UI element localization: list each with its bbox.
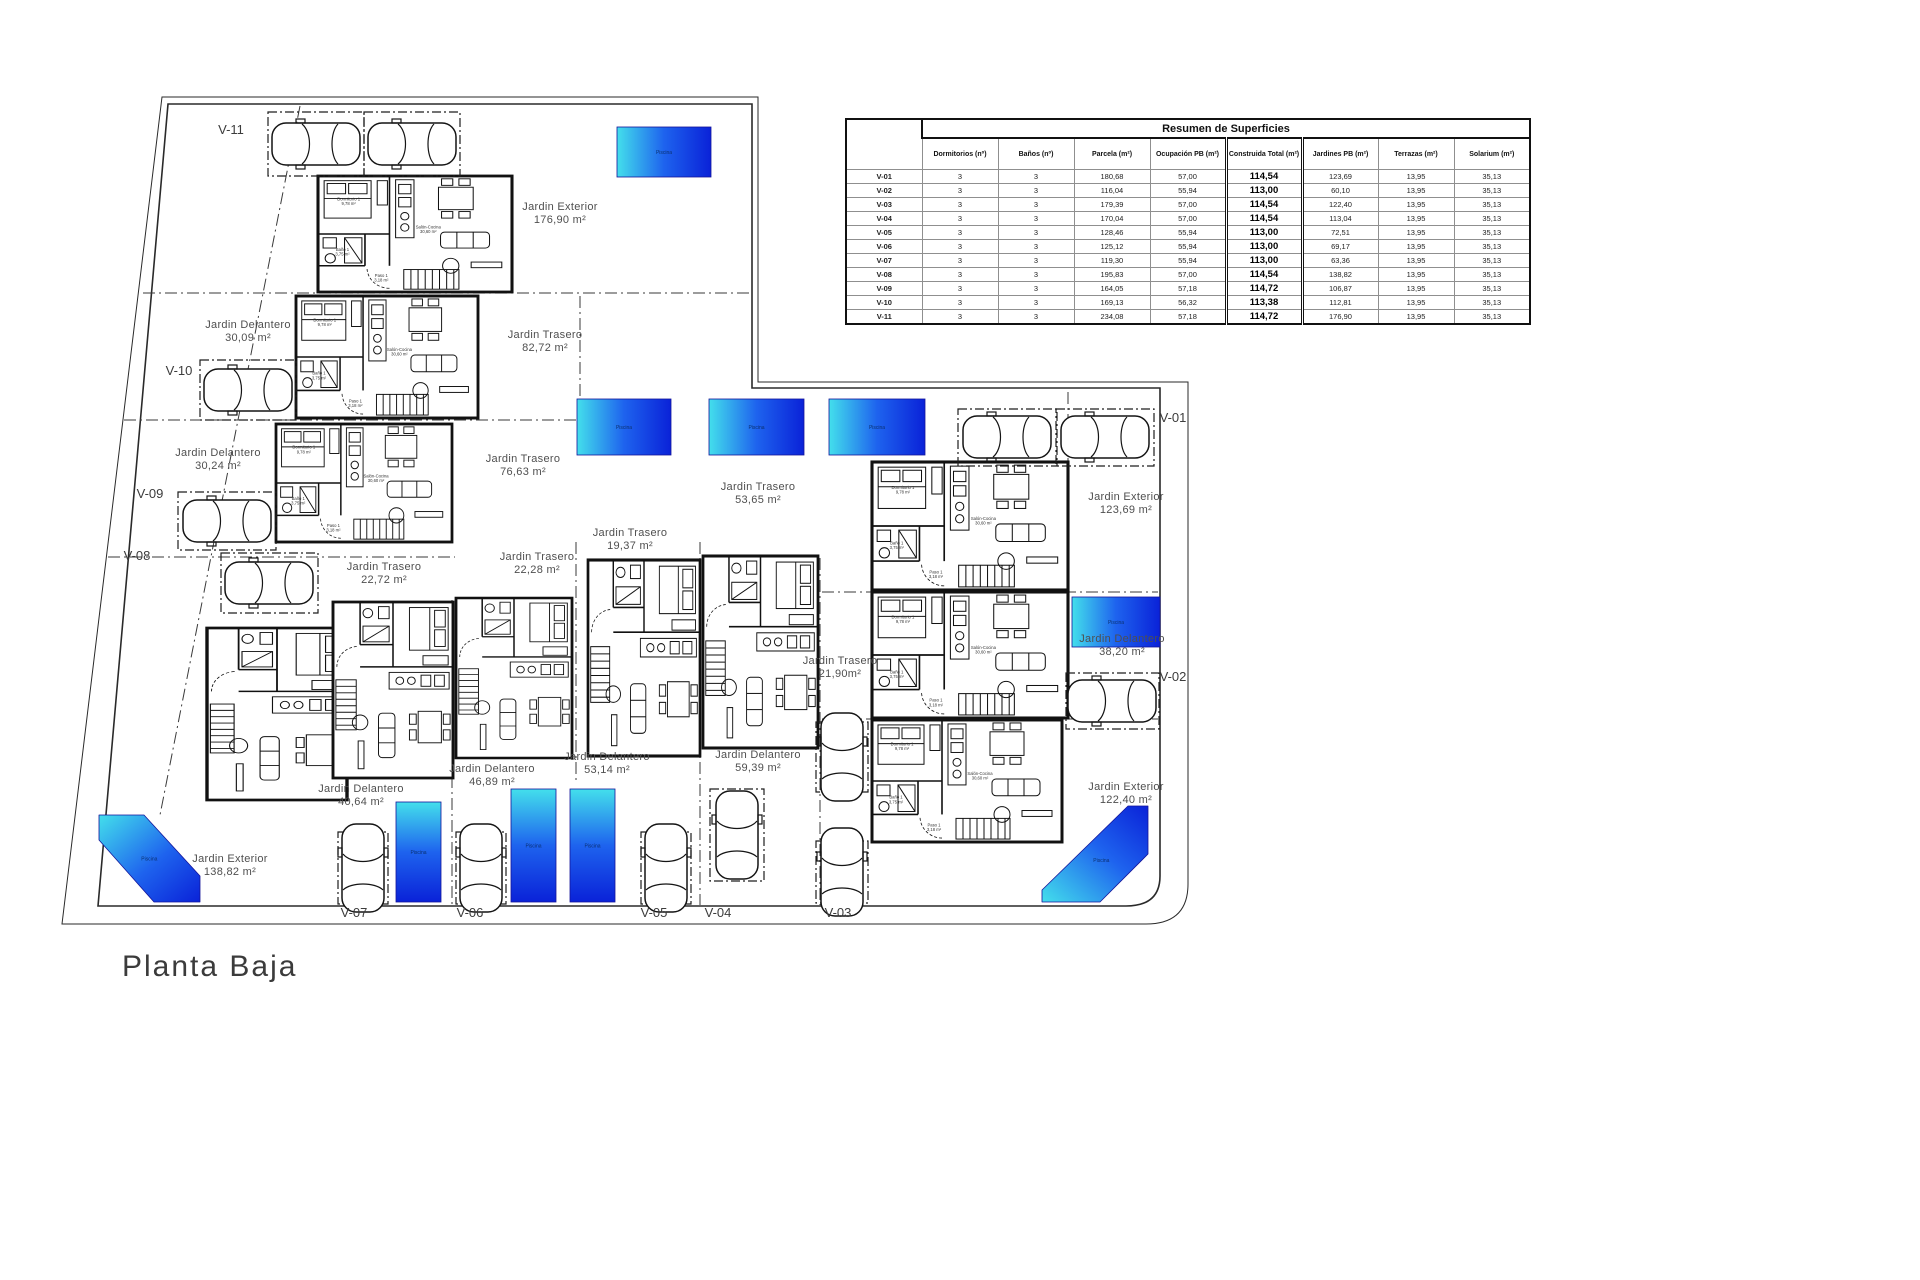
row-header: V-01 <box>846 170 922 184</box>
table-cell: 3 <box>922 254 998 268</box>
row-header: V-02 <box>846 184 922 198</box>
plot-label-V-07: V-07 <box>341 905 368 920</box>
pool-label: Piscina <box>748 425 764 431</box>
table-cell: 13,95 <box>1378 170 1454 184</box>
room-label: Paso 13,18 m² <box>929 569 944 579</box>
table-cell: 3 <box>998 226 1074 240</box>
table-cell: 35,13 <box>1454 198 1530 212</box>
car-icon <box>817 828 867 916</box>
table-row-V-06: V-0633125,1255,94113,0069,1713,9535,13 <box>846 240 1530 254</box>
table-cell: 63,36 <box>1302 254 1378 268</box>
row-header: V-07 <box>846 254 922 268</box>
table-cell: 55,94 <box>1150 240 1226 254</box>
room-label: Baño 13,75 m² <box>890 541 905 551</box>
table-cell: 164,05 <box>1074 282 1150 296</box>
table-cell: 35,13 <box>1454 282 1530 296</box>
pool-label: Piscina <box>1093 858 1109 864</box>
house-V-01 <box>872 462 1068 590</box>
table-cell: 114,54 <box>1226 198 1302 212</box>
table-row-V-07: V-0733119,3055,94113,0063,3613,9535,13 <box>846 254 1530 268</box>
column-header: Construida Total (m²) <box>1226 138 1302 170</box>
table-cell: 113,00 <box>1226 254 1302 268</box>
room-label: Paso 13,18 m² <box>326 523 341 533</box>
car-icon <box>183 496 271 546</box>
car-icon <box>1068 676 1156 726</box>
table-cell: 13,95 <box>1378 198 1454 212</box>
room-label: Baño 13,75 m² <box>312 371 327 381</box>
house-V-07 <box>333 602 453 778</box>
row-header: V-08 <box>846 268 922 282</box>
table-cell: 35,13 <box>1454 240 1530 254</box>
table-cell: 3 <box>922 184 998 198</box>
table-cell: 125,12 <box>1074 240 1150 254</box>
table-cell: 3 <box>998 268 1074 282</box>
table-cell: 114,72 <box>1226 282 1302 296</box>
table-row-V-02: V-0233116,0455,94113,0060,1013,9535,13 <box>846 184 1530 198</box>
table-cell: 3 <box>998 254 1074 268</box>
car-icon <box>963 412 1051 462</box>
table-cell: 3 <box>922 240 998 254</box>
table-cell: 35,13 <box>1454 226 1530 240</box>
table-cell: 3 <box>998 310 1074 325</box>
table-cell: 35,13 <box>1454 296 1530 310</box>
table-cell: 113,38 <box>1226 296 1302 310</box>
room-label: Paso 13,18 m² <box>927 822 942 832</box>
plot-label-V-03: V-03 <box>825 905 852 920</box>
plot-label-V-08: V-08 <box>124 548 151 563</box>
row-header: V-11 <box>846 310 922 325</box>
room-label: Paso 13,18 m² <box>348 398 363 408</box>
table-cell: 119,30 <box>1074 254 1150 268</box>
table-cell: 35,13 <box>1454 184 1530 198</box>
column-header: Terrazas (m²) <box>1378 138 1454 170</box>
table-cell: 57,18 <box>1150 282 1226 296</box>
table-cell: 3 <box>998 282 1074 296</box>
house-V-03 <box>872 720 1062 842</box>
table-row-V-10: V-1033169,1356,32113,38112,8113,9535,13 <box>846 296 1530 310</box>
pool-label: Piscina <box>656 150 672 156</box>
table-cell: 3 <box>922 296 998 310</box>
house-V-04 <box>703 556 818 748</box>
table-corner-cell <box>846 119 922 170</box>
table-cell: 3 <box>922 226 998 240</box>
surface-summary-table: Resumen de SuperficiesDormitorios (nº)Ba… <box>845 118 1531 325</box>
row-header: V-04 <box>846 212 922 226</box>
plot-label-V-10: V-10 <box>166 363 193 378</box>
room-label: Baño 13,75 m² <box>890 669 905 679</box>
table-cell: 179,39 <box>1074 198 1150 212</box>
table-cell: 13,95 <box>1378 310 1454 325</box>
pool-label: Piscina <box>869 425 885 431</box>
room-label: Baño 13,75 m² <box>291 496 306 506</box>
table-cell: 57,00 <box>1150 268 1226 282</box>
column-header: Solarium (m²) <box>1454 138 1530 170</box>
table-cell: 55,94 <box>1150 226 1226 240</box>
table-cell: 55,94 <box>1150 254 1226 268</box>
table-cell: 114,72 <box>1226 310 1302 325</box>
table-cell: 69,17 <box>1302 240 1378 254</box>
table-cell: 113,00 <box>1226 240 1302 254</box>
table-row-V-01: V-0133180,6857,00114,54123,6913,9535,13 <box>846 170 1530 184</box>
plot-label-V-09: V-09 <box>137 486 164 501</box>
table-cell: 138,82 <box>1302 268 1378 282</box>
table-cell: 195,83 <box>1074 268 1150 282</box>
car-icon <box>1061 412 1149 462</box>
table-cell: 55,94 <box>1150 184 1226 198</box>
table-cell: 113,00 <box>1226 184 1302 198</box>
pool-label: Piscina <box>525 844 541 850</box>
table-cell: 123,69 <box>1302 170 1378 184</box>
table-cell: 35,13 <box>1454 268 1530 282</box>
table-cell: 170,04 <box>1074 212 1150 226</box>
room-label: Baño 13,75 m² <box>335 247 350 257</box>
table-cell: 35,13 <box>1454 170 1530 184</box>
car-icon <box>817 713 867 801</box>
table-cell: 3 <box>998 240 1074 254</box>
plot-label-V-06: V-06 <box>457 905 484 920</box>
table-cell: 3 <box>998 296 1074 310</box>
table-cell: 3 <box>998 184 1074 198</box>
column-header: Baños (nº) <box>998 138 1074 170</box>
table-cell: 13,95 <box>1378 296 1454 310</box>
row-header: V-10 <box>846 296 922 310</box>
table-row-V-03: V-0333179,3957,00114,54122,4013,9535,13 <box>846 198 1530 212</box>
table-cell: 13,95 <box>1378 212 1454 226</box>
house-V-10 <box>296 296 478 418</box>
pool-label: Piscina <box>584 844 600 850</box>
table-cell: 3 <box>998 170 1074 184</box>
table-cell: 3 <box>922 198 998 212</box>
plot-label-V-04: V-04 <box>705 905 732 920</box>
table-cell: 176,90 <box>1302 310 1378 325</box>
column-header: Parcela (m²) <box>1074 138 1150 170</box>
house-V-05 <box>588 560 700 756</box>
table-cell: 13,95 <box>1378 226 1454 240</box>
table-cell: 72,51 <box>1302 226 1378 240</box>
table-cell: 169,13 <box>1074 296 1150 310</box>
table-cell: 57,00 <box>1150 212 1226 226</box>
pool-label: Piscina <box>616 425 632 431</box>
house-V-09 <box>276 424 452 542</box>
table-cell: 13,95 <box>1378 240 1454 254</box>
table-cell: 60,10 <box>1302 184 1378 198</box>
room-label: Paso 13,18 m² <box>374 273 389 283</box>
table-cell: 35,13 <box>1454 254 1530 268</box>
table-cell: 57,00 <box>1150 170 1226 184</box>
car-icon <box>456 824 506 912</box>
table-cell: 106,87 <box>1302 282 1378 296</box>
table-cell: 13,95 <box>1378 254 1454 268</box>
row-header: V-03 <box>846 198 922 212</box>
table-cell: 13,95 <box>1378 184 1454 198</box>
pool-label: Piscina <box>1108 620 1124 626</box>
table-cell: 113,00 <box>1226 226 1302 240</box>
table-cell: 112,81 <box>1302 296 1378 310</box>
plot-label-V-02: V-02 <box>1160 669 1187 684</box>
car-icon <box>204 365 292 415</box>
plot-label-V-05: V-05 <box>641 905 668 920</box>
house-V-02 <box>872 592 1068 718</box>
house-V-08 <box>207 628 347 800</box>
table-cell: 35,13 <box>1454 212 1530 226</box>
car-icon <box>338 824 388 912</box>
table-cell: 180,68 <box>1074 170 1150 184</box>
column-header: Dormitorios (nº) <box>922 138 998 170</box>
table-row-V-11: V-1133234,0857,18114,72176,9013,9535,13 <box>846 310 1530 325</box>
car-icon <box>272 119 360 169</box>
pool-label: Piscina <box>141 856 157 862</box>
house-V-06 <box>456 598 572 758</box>
pool-label: Piscina <box>410 850 426 856</box>
table-cell: 13,95 <box>1378 268 1454 282</box>
table-cell: 3 <box>922 282 998 296</box>
column-header: Jardines PB (m²) <box>1302 138 1378 170</box>
table-cell: 128,46 <box>1074 226 1150 240</box>
table-cell: 114,54 <box>1226 170 1302 184</box>
table-cell: 3 <box>922 170 998 184</box>
table-row-V-04: V-0433170,0457,00114,54113,0413,9535,13 <box>846 212 1530 226</box>
car-icon <box>225 558 313 608</box>
table-cell: 57,18 <box>1150 310 1226 325</box>
table-row-V-08: V-0833195,8357,00114,54138,8213,9535,13 <box>846 268 1530 282</box>
table-cell: 57,00 <box>1150 198 1226 212</box>
table-cell: 234,08 <box>1074 310 1150 325</box>
table-cell: 3 <box>998 198 1074 212</box>
row-header: V-06 <box>846 240 922 254</box>
table-cell: 122,40 <box>1302 198 1378 212</box>
table-cell: 3 <box>922 212 998 226</box>
table-cell: 116,04 <box>1074 184 1150 198</box>
room-label: Baño 13,75 m² <box>889 795 904 805</box>
plot-label-V-01: V-01 <box>1160 410 1187 425</box>
car-icon <box>641 824 691 912</box>
room-label: Paso 13,18 m² <box>929 698 944 708</box>
table-cell: 56,32 <box>1150 296 1226 310</box>
table-cell: 35,13 <box>1454 310 1530 325</box>
table-title: Resumen de Superficies <box>922 119 1530 138</box>
row-header: V-05 <box>846 226 922 240</box>
table-row-V-09: V-0933164,0557,18114,72106,8713,9535,13 <box>846 282 1530 296</box>
table-cell: 3 <box>922 310 998 325</box>
car-icon <box>712 791 762 879</box>
plan-title: Planta Baja <box>122 950 297 984</box>
table-cell: 113,04 <box>1302 212 1378 226</box>
plot-label-V-11: V-11 <box>218 122 244 137</box>
table-row-V-05: V-0533128,4655,94113,0072,5113,9535,13 <box>846 226 1530 240</box>
table-cell: 114,54 <box>1226 268 1302 282</box>
car-icon <box>368 119 456 169</box>
table-cell: 13,95 <box>1378 282 1454 296</box>
resumen-table: Resumen de SuperficiesDormitorios (nº)Ba… <box>845 118 1531 325</box>
table-cell: 3 <box>922 268 998 282</box>
house-V-11 <box>318 176 512 292</box>
row-header: V-09 <box>846 282 922 296</box>
table-cell: 3 <box>998 212 1074 226</box>
column-header: Ocupación PB (m²) <box>1150 138 1226 170</box>
table-cell: 114,54 <box>1226 212 1302 226</box>
